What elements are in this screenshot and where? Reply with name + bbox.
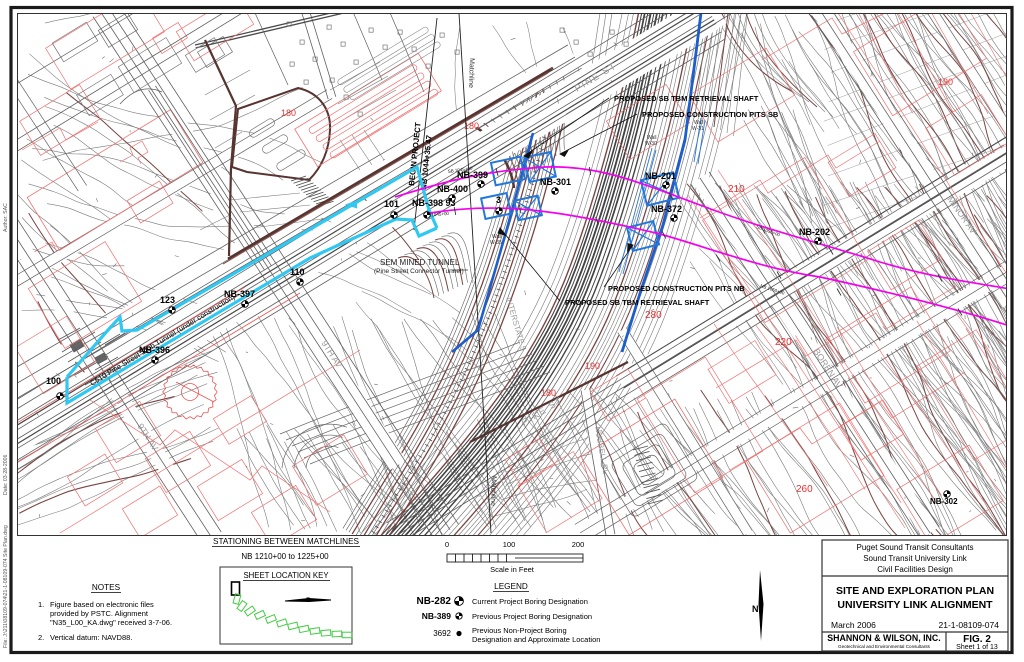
svg-text:Sheet 1 of 13: Sheet 1 of 13: [956, 644, 998, 651]
svg-text:190: 190: [938, 77, 953, 87]
svg-text:NB-397: NB-397: [224, 289, 255, 299]
svg-text:PROPOSED CONSTRUCTION PITS SB: PROPOSED CONSTRUCTION PITS SB: [642, 110, 779, 119]
svg-text:W-35: W-35: [490, 240, 502, 246]
svg-text:200: 200: [572, 540, 585, 549]
svg-text:March 2006: March 2006: [831, 620, 876, 630]
svg-text:NB-301: NB-301: [540, 177, 571, 187]
svg-text:260: 260: [796, 484, 813, 495]
svg-text:NB-389: NB-389: [422, 611, 452, 621]
svg-text:W-31: W-31: [692, 126, 704, 132]
svg-text:LEGEND: LEGEND: [494, 582, 528, 591]
svg-text:N: N: [752, 604, 759, 614]
svg-text:220: 220: [775, 337, 792, 348]
svg-text:Figure based on electronic fil: Figure based on electronic files: [50, 600, 154, 609]
svg-text:21-1-08109-074: 21-1-08109-074: [939, 620, 1000, 630]
svg-text:Author: SAC: Author: SAC: [3, 203, 9, 232]
svg-text:210: 210: [728, 184, 745, 195]
svg-text:100: 100: [46, 376, 61, 386]
svg-text:NB-396: NB-396: [139, 345, 170, 355]
svg-text:NB-399: NB-399: [457, 170, 488, 180]
svg-text:W-30: W-30: [645, 141, 657, 147]
svg-text:Designation and Approximate Lo: Designation and Approximate Location: [472, 635, 600, 644]
svg-text:Sound Transit University Link: Sound Transit University Link: [863, 554, 968, 563]
svg-text:Matchline: Matchline: [467, 58, 475, 88]
svg-text:(Pine Street Connector Tunnel): (Pine Street Connector Tunnel): [374, 268, 464, 275]
svg-text:Geotechnical and Environmental: Geotechnical and Environmental Consultan…: [838, 644, 931, 649]
svg-text:PROPOSED SB TBM RETRIEVAL SHAF: PROPOSED SB TBM RETRIEVAL SHAFT: [614, 94, 759, 103]
svg-text:"N35_L00_KA.dwg" received 3-7-: "N35_L00_KA.dwg" received 3-7-06.: [50, 618, 172, 627]
svg-text:STATIONING BETWEEN MATCHLINES: STATIONING BETWEEN MATCHLINES: [213, 537, 360, 546]
svg-text:Current Project Boring Designa: Current Project Boring Designation: [472, 597, 588, 606]
svg-text:3692: 3692: [433, 629, 451, 638]
svg-text:NB-202: NB-202: [799, 227, 830, 237]
svg-text:SHEET LOCATION KEY: SHEET LOCATION KEY: [243, 571, 329, 580]
svg-text:110: 110: [290, 267, 305, 277]
svg-text:UNIVERSITY LINK ALIGNMENT: UNIVERSITY LINK ALIGNMENT: [837, 599, 993, 611]
svg-text:NB-400: NB-400: [437, 184, 468, 194]
svg-text:Scale in Feet: Scale in Feet: [490, 565, 535, 574]
svg-text:3: 3: [496, 195, 501, 205]
svg-text:NB-201: NB-201: [645, 171, 676, 181]
svg-text:190: 190: [585, 361, 600, 371]
svg-text:Previous Project Boring Design: Previous Project Boring Designation: [472, 612, 592, 621]
svg-text:123: 123: [160, 295, 175, 305]
svg-text:NB 1210+00 to 1225+00: NB 1210+00 to 1225+00: [241, 552, 329, 561]
svg-text:NB-302: NB-302: [930, 497, 958, 506]
svg-text:PROPOSED SB TBM RETRIEVAL SHAF: PROPOSED SB TBM RETRIEVAL SHAFT: [565, 298, 710, 307]
svg-text:0: 0: [445, 540, 449, 549]
svg-text:NB-282: NB-282: [417, 596, 452, 607]
svg-text:1.: 1.: [38, 600, 44, 609]
svg-text:NB-372: NB-372: [651, 204, 682, 214]
svg-text:Civil Facilities Design: Civil Facilities Design: [877, 565, 953, 574]
svg-text:Puget Sound Transit Consultant: Puget Sound Transit Consultants: [857, 543, 974, 552]
svg-text:280: 280: [645, 310, 662, 321]
svg-text:Previous Non-Project Boring: Previous Non-Project Boring: [472, 626, 567, 635]
svg-text:Date: 03-28-2006: Date: 03-28-2006: [3, 455, 9, 495]
svg-text:SHANNON & WILSON, INC.: SHANNON & WILSON, INC.: [827, 633, 940, 643]
svg-text:Vertical datum: NAVD88.: Vertical datum: NAVD88.: [50, 633, 132, 642]
svg-text:Matchline: Matchline: [489, 476, 497, 506]
svg-text:180: 180: [541, 388, 556, 398]
svg-text:SITE AND EXPLORATION PLAN: SITE AND EXPLORATION PLAN: [836, 585, 994, 597]
svg-text:provided by PSTC. Alignment: provided by PSTC. Alignment: [50, 609, 149, 618]
svg-text:SEM MINED TUNNEL: SEM MINED TUNNEL: [380, 258, 460, 267]
svg-text:101: 101: [384, 199, 399, 209]
svg-text:100: 100: [503, 540, 516, 549]
svg-text:2.: 2.: [38, 633, 44, 642]
svg-text:NOTES: NOTES: [92, 583, 121, 592]
svg-text:180: 180: [281, 108, 296, 118]
svg-text:File: J:\211\08109-074\21-1-08: File: J:\211\08109-074\21-1-08109-074 Si…: [3, 525, 9, 648]
